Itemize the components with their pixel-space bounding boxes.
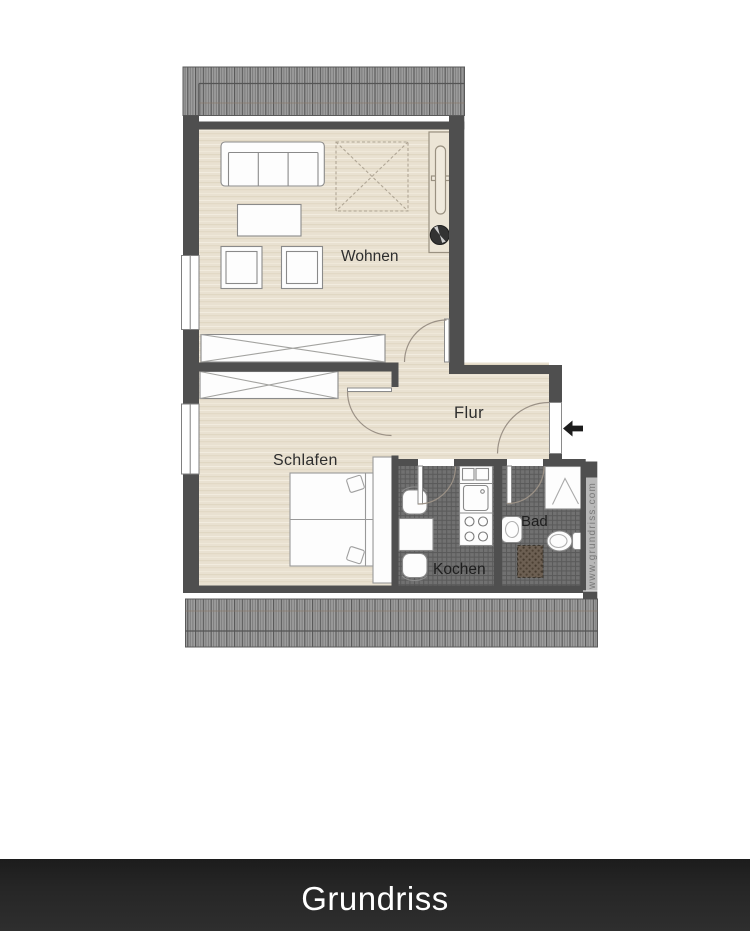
svg-text:Wohnen: Wohnen <box>341 248 398 265</box>
svg-text:Flur: Flur <box>454 404 484 422</box>
svg-text:Kochen: Kochen <box>433 561 486 578</box>
svg-text:www.grundriss.com: www.grundriss.com <box>587 482 598 590</box>
svg-text:Bad: Bad <box>521 513 548 530</box>
svg-text:Schlafen: Schlafen <box>273 452 338 469</box>
